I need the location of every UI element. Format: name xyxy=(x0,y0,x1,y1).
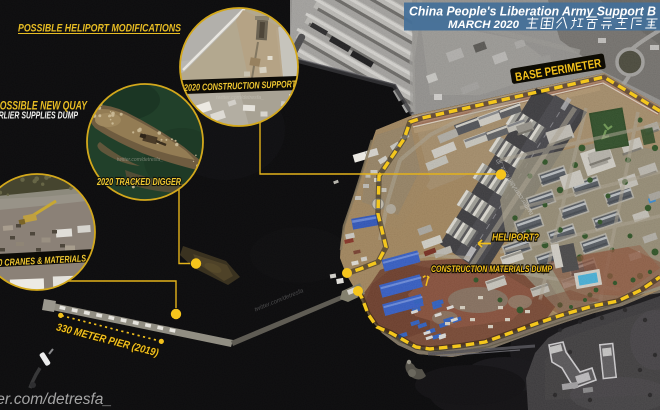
svg-text:China People's Liberation Army: China People's Liberation Army Support B xyxy=(409,4,656,18)
svg-text:EARLIER SUPPLIES DUMP: EARLIER SUPPLIES DUMP xyxy=(0,110,78,121)
svg-text:POSSIBLE HELIPORT MODIFICATION: POSSIBLE HELIPORT MODIFICATIONS xyxy=(18,23,182,35)
svg-text:twitter.com/detresfa_: twitter.com/detresfa_ xyxy=(117,157,163,163)
svg-text:MARCH 2020: MARCH 2020 xyxy=(448,19,520,31)
svg-text:2020 TRACKED DIGGER: 2020 TRACKED DIGGER xyxy=(96,177,181,188)
svg-text:CONSTRUCTION MATERIALS DUMP: CONSTRUCTION MATERIALS DUMP xyxy=(431,264,552,275)
svg-text:twitter.com/detresfa_: twitter.com/detresfa_ xyxy=(216,95,264,101)
svg-text:HELIPORT?: HELIPORT? xyxy=(492,232,539,243)
svg-text:ter.com/detresfa_: ter.com/detresfa_ xyxy=(0,391,112,408)
